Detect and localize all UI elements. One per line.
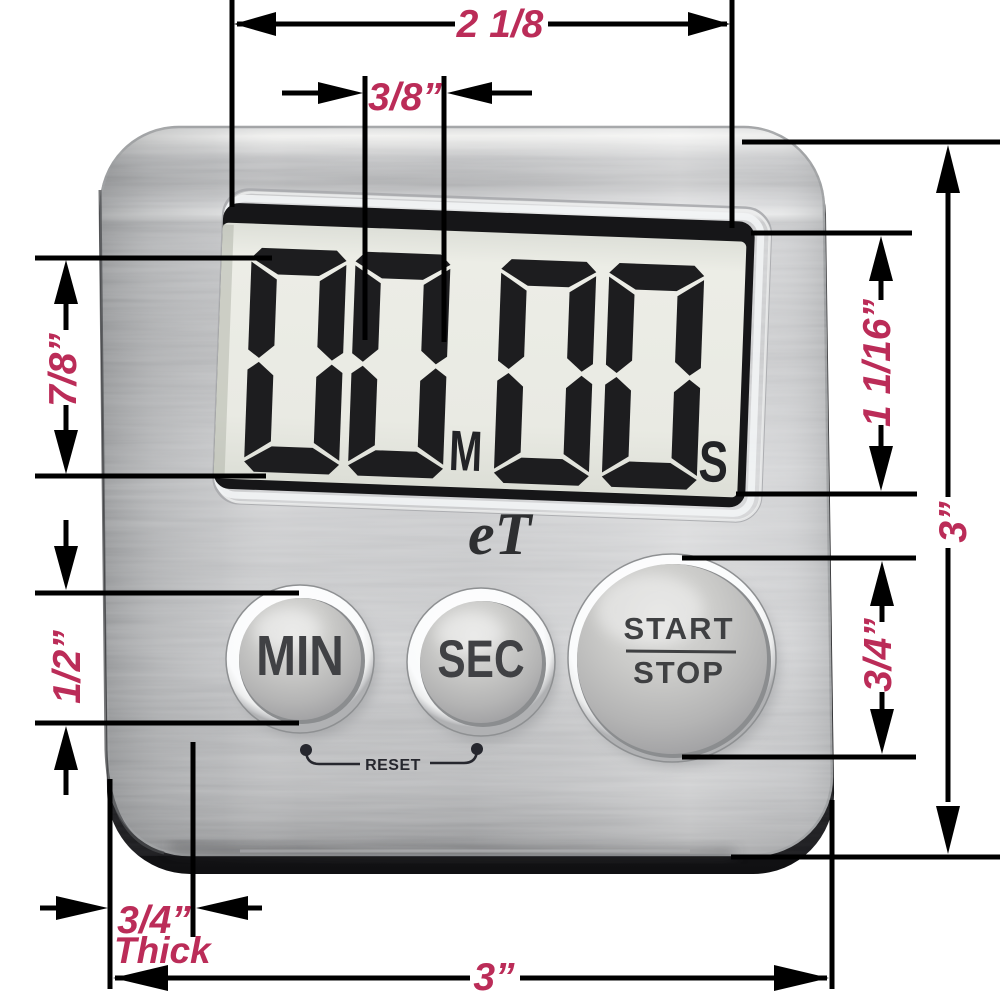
svg-text:SEC: SEC	[437, 631, 524, 690]
svg-text:3”: 3”	[932, 501, 975, 543]
svg-text:3/8”: 3/8”	[368, 76, 442, 119]
svg-text:eT: eT	[468, 501, 534, 567]
svg-text:STOP: STOP	[633, 655, 725, 690]
svg-text:3/4”: 3/4”	[857, 618, 900, 692]
svg-text:1 1/16”: 1 1/16”	[856, 299, 899, 427]
svg-text:7/8”: 7/8”	[42, 333, 85, 407]
svg-text:S: S	[698, 428, 730, 494]
svg-text:Thick: Thick	[114, 930, 213, 971]
svg-text:2 1/8: 2 1/8	[456, 3, 544, 46]
svg-text:RESET: RESET	[365, 757, 421, 774]
svg-text:M: M	[448, 419, 484, 484]
svg-text:3”: 3”	[473, 956, 515, 999]
svg-text:1/2”: 1/2”	[46, 630, 89, 704]
svg-text:MIN: MIN	[256, 624, 344, 688]
svg-text:START: START	[623, 611, 734, 646]
